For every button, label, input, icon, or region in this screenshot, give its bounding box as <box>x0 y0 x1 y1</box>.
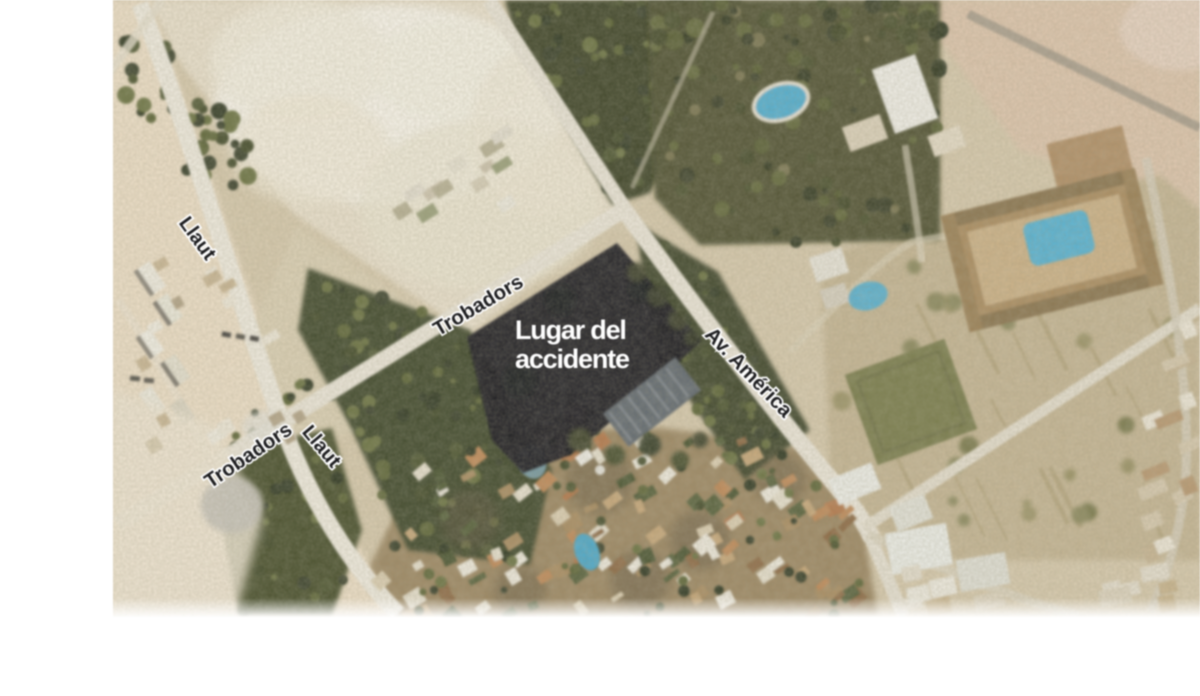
svg-text:accidente: accidente <box>515 344 630 374</box>
svg-text:Lugar del: Lugar del <box>515 315 626 345</box>
